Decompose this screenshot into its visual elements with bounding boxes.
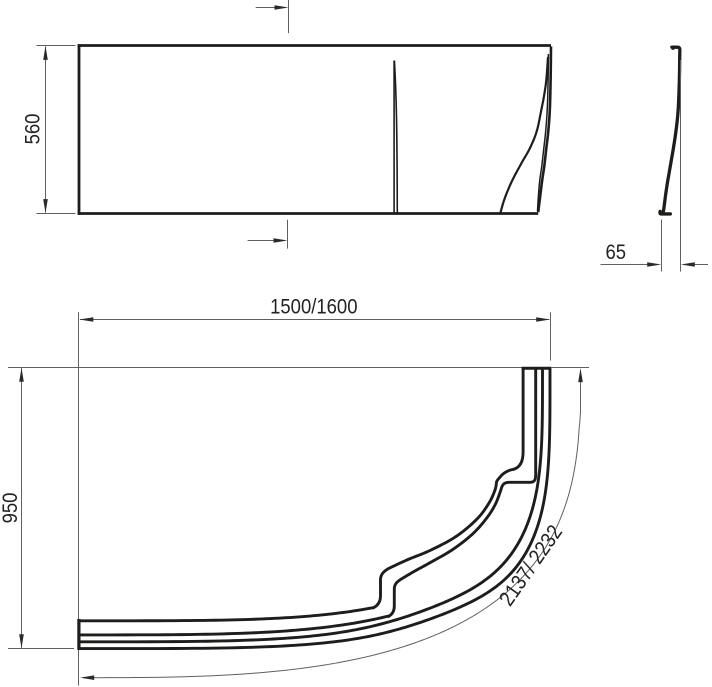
svg-text:950: 950 [0,493,22,524]
svg-text:65: 65 [606,241,627,265]
svg-text:560: 560 [21,114,45,145]
svg-text:1500/1600: 1500/1600 [270,295,357,319]
svg-text:2137/ 2232: 2137/ 2232 [495,521,567,610]
